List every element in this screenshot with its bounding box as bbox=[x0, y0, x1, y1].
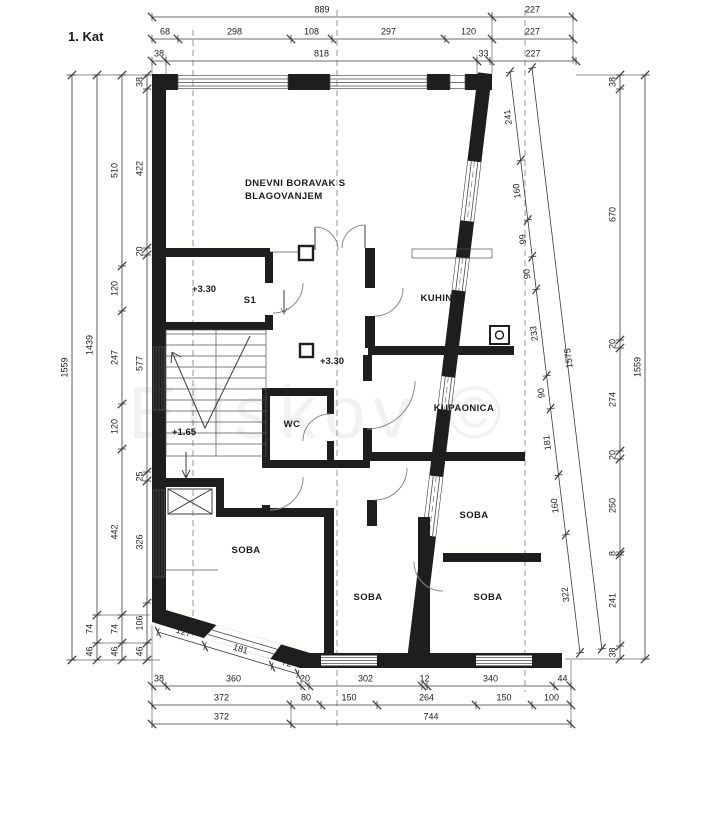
watermark: Eliskov © bbox=[128, 371, 509, 454]
dim-value: 326 bbox=[135, 534, 145, 549]
dim-chain-right-inner: 386702027420250824138 bbox=[608, 71, 625, 663]
dim-value: 1559 bbox=[60, 357, 70, 377]
dim-value: 241 bbox=[502, 109, 514, 125]
dim-value: 264 bbox=[419, 693, 434, 703]
dim-chain-bottom-inner: 38360203021234044 bbox=[148, 674, 575, 691]
dim-value: 247 bbox=[110, 350, 120, 365]
level-label-330-b: +3.30 bbox=[320, 356, 344, 367]
dim-value: 181 bbox=[541, 435, 553, 451]
room-label-living-line1: DNEVNI BORAVAK S bbox=[245, 178, 346, 189]
dim-value: 889 bbox=[314, 5, 329, 15]
dim-value: 46 bbox=[110, 646, 120, 656]
dim-chain-top-middle: 68298108297120227 bbox=[148, 27, 577, 44]
dim-value: 150 bbox=[496, 693, 511, 703]
dim-value: 106 bbox=[135, 615, 145, 630]
dim-value: 160 bbox=[549, 498, 561, 514]
dim-value: 227 bbox=[525, 49, 540, 59]
dim-value: 818 bbox=[314, 49, 329, 59]
dim-value: 297 bbox=[381, 27, 396, 37]
dim-value: 120 bbox=[110, 281, 120, 296]
dim-value: 20 bbox=[135, 246, 145, 256]
dim-value: 25 bbox=[135, 471, 145, 481]
dim-value: 100 bbox=[544, 693, 559, 703]
soba-left-door-arc bbox=[270, 477, 303, 510]
dim-value: 46 bbox=[85, 646, 95, 656]
room-label-soba-3: SOBA bbox=[473, 592, 502, 603]
chimney-flue-icon bbox=[299, 246, 313, 260]
dim-value: 1575 bbox=[562, 348, 574, 369]
dim-chain-bottom-middle: 37280150264150100 bbox=[148, 693, 575, 710]
dim-value: 108 bbox=[304, 27, 319, 37]
dim-value: 298 bbox=[227, 27, 242, 37]
dim-value: 160 bbox=[511, 183, 523, 199]
dim-chain-bottom-total: 372744 bbox=[148, 712, 575, 729]
dim-value: 38 bbox=[608, 647, 618, 657]
dim-chain-right-total: 1559 bbox=[633, 71, 650, 663]
dim-chain-left-inner: 38422205772532610646 bbox=[135, 71, 152, 664]
dim-value: 74 bbox=[85, 624, 95, 634]
dim-value: 90 bbox=[521, 268, 532, 279]
dim-value: 744 bbox=[423, 712, 438, 722]
dim-chain-slant-total: 1575 bbox=[528, 63, 606, 653]
dim-value: 302 bbox=[358, 674, 373, 684]
floor-plan-drawing: 1. Kat DNEVNI BORAVAK S BLAGOVANJEM KUHI… bbox=[0, 0, 712, 828]
dim-chain-left-3: 5101202471204427446 bbox=[110, 71, 127, 664]
dim-value: 227 bbox=[525, 27, 540, 37]
dim-value: 20 bbox=[608, 450, 618, 460]
fixtures bbox=[299, 246, 509, 357]
dim-value: 44 bbox=[557, 674, 567, 684]
kitchen-door-arc bbox=[375, 288, 403, 316]
dim-value: 68 bbox=[160, 27, 170, 37]
boiler-icon bbox=[490, 326, 509, 344]
dim-value: 1559 bbox=[633, 357, 643, 377]
dim-chain-left-total: 1559 bbox=[60, 71, 77, 664]
dim-value: 90 bbox=[536, 388, 547, 399]
dim-value: 72 bbox=[281, 657, 293, 669]
room-label-kitchen: KUHINJA bbox=[420, 293, 465, 304]
dim-value: 233 bbox=[528, 325, 540, 341]
dimension-chains: 8892276829810829712022738818332271559143… bbox=[60, 5, 650, 729]
dim-value: 46 bbox=[135, 646, 145, 656]
dim-value: 670 bbox=[608, 207, 618, 222]
dim-value: 274 bbox=[608, 392, 618, 407]
dim-chain-top-total: 889227 bbox=[148, 5, 577, 22]
dim-value: 38 bbox=[135, 77, 145, 87]
dim-value: 20 bbox=[300, 674, 310, 684]
dim-value: 99 bbox=[517, 234, 528, 245]
shaft-cross bbox=[168, 489, 212, 514]
dim-value: 38 bbox=[154, 49, 164, 59]
dim-chain-left-2: 14397446 bbox=[85, 71, 102, 664]
chimney-flue-icon bbox=[300, 344, 313, 357]
dim-value: 250 bbox=[608, 498, 618, 513]
double-door bbox=[315, 225, 365, 250]
dim-value: 510 bbox=[110, 163, 120, 178]
s1-door bbox=[273, 283, 303, 314]
dim-value: 80 bbox=[301, 693, 311, 703]
dim-value: 38 bbox=[154, 674, 164, 684]
room-label-soba-4: SOBA bbox=[459, 510, 488, 521]
dim-value: 8 bbox=[608, 551, 618, 556]
floor-plan-page: 1. Kat DNEVNI BORAVAK S BLAGOVANJEM KUHI… bbox=[0, 0, 712, 828]
dim-value: 360 bbox=[226, 674, 241, 684]
dim-value: 241 bbox=[608, 593, 618, 608]
dim-value: 150 bbox=[341, 693, 356, 703]
dim-value: 20 bbox=[608, 339, 618, 349]
dim-value: 74 bbox=[110, 624, 120, 634]
room-label-s1: S1 bbox=[244, 295, 257, 306]
dim-value: 33 bbox=[478, 49, 488, 59]
dim-value: 340 bbox=[483, 674, 498, 684]
room-label-soba-2: SOBA bbox=[353, 592, 382, 603]
dim-value: 12 bbox=[419, 674, 429, 684]
dim-value: 120 bbox=[461, 27, 476, 37]
kitchen-counter bbox=[412, 249, 492, 258]
dim-value: 1439 bbox=[85, 335, 95, 355]
dim-value: 422 bbox=[135, 161, 145, 176]
dim-value: 322 bbox=[560, 587, 572, 603]
page-title: 1. Kat bbox=[68, 29, 104, 44]
dim-value: 38 bbox=[608, 77, 618, 87]
dim-value: 577 bbox=[135, 356, 145, 371]
room-label-soba-1: SOBA bbox=[231, 545, 260, 556]
soba-middle-door-arc bbox=[375, 468, 407, 500]
dim-value: 372 bbox=[214, 712, 229, 722]
level-label-330-a: +3.30 bbox=[192, 284, 216, 295]
room-label-living-line2: BLAGOVANJEM bbox=[245, 191, 323, 202]
dim-value: 442 bbox=[110, 524, 120, 539]
dim-value: 227 bbox=[525, 5, 540, 15]
dim-value: 372 bbox=[214, 693, 229, 703]
dim-value: 120 bbox=[110, 419, 120, 434]
dim-chain-top-inner: 3881833227 bbox=[148, 49, 580, 66]
